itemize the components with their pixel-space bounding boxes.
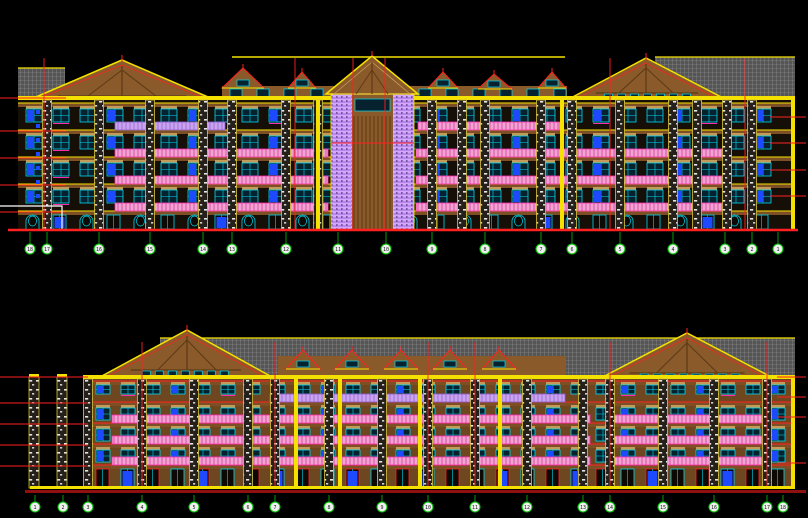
svg-text:17: 17: [764, 505, 770, 511]
svg-text:10: 10: [383, 247, 389, 253]
svg-text:17: 17: [44, 247, 50, 253]
svg-text:7: 7: [539, 247, 542, 253]
elevation-drawing-canvas: 181716151413121110987654321 123456789101…: [0, 0, 808, 518]
upper-elevation: 181716151413121110987654321: [0, 51, 806, 254]
svg-text:2: 2: [750, 247, 753, 253]
svg-text:7: 7: [273, 505, 276, 511]
svg-text:3: 3: [723, 247, 726, 253]
svg-text:9: 9: [380, 505, 383, 511]
svg-text:6: 6: [246, 505, 249, 511]
svg-text:16: 16: [711, 505, 717, 511]
cad-drawing-viewport: 181716151413121110987654321 123456789101…: [0, 0, 808, 518]
svg-text:11: 11: [335, 247, 341, 253]
facade: [83, 375, 795, 488]
svg-text:14: 14: [607, 505, 613, 511]
svg-text:8: 8: [327, 505, 330, 511]
svg-text:11: 11: [472, 505, 478, 511]
svg-text:5: 5: [618, 247, 621, 253]
svg-text:9: 9: [430, 247, 433, 253]
svg-text:1: 1: [776, 247, 779, 253]
svg-text:15: 15: [660, 505, 666, 511]
svg-text:5: 5: [192, 505, 195, 511]
svg-text:6: 6: [570, 247, 573, 253]
svg-text:8: 8: [483, 247, 486, 253]
svg-text:15: 15: [147, 247, 153, 253]
svg-text:10: 10: [425, 505, 431, 511]
svg-text:14: 14: [200, 247, 206, 253]
svg-text:3: 3: [86, 505, 89, 511]
svg-text:12: 12: [524, 505, 530, 511]
svg-text:13: 13: [580, 505, 586, 511]
svg-text:2: 2: [61, 505, 64, 511]
svg-text:18: 18: [780, 505, 786, 511]
svg-text:13: 13: [229, 247, 235, 253]
svg-text:16: 16: [96, 247, 102, 253]
svg-text:1: 1: [33, 505, 36, 511]
svg-text:12: 12: [283, 247, 289, 253]
svg-text:18: 18: [27, 247, 33, 253]
svg-text:4: 4: [671, 247, 674, 253]
svg-text:4: 4: [140, 505, 143, 511]
